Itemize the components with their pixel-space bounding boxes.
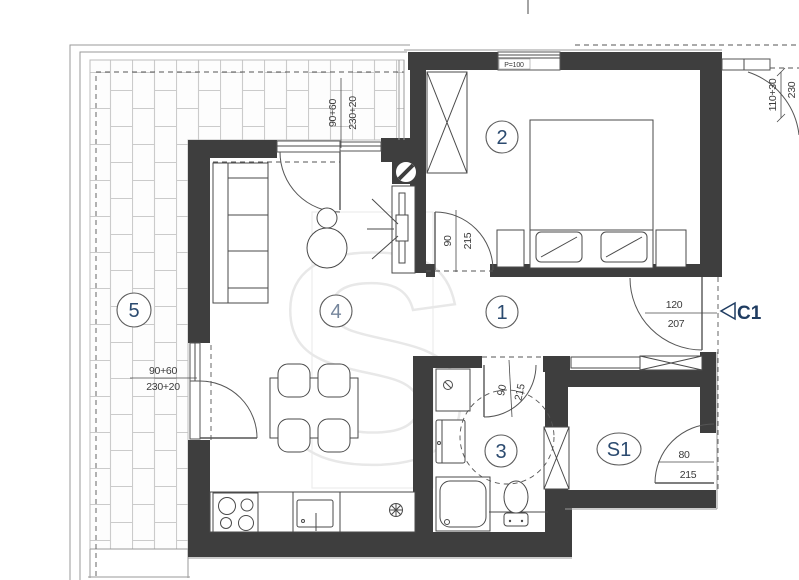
hall-closet	[571, 357, 640, 368]
kitchen-sink	[297, 500, 333, 531]
svg-text:1: 1	[496, 302, 507, 324]
kitchen-counter	[210, 492, 415, 532]
dim-entry-door: 120 207	[645, 299, 717, 330]
bath-sink	[436, 369, 470, 411]
bedroom-window: P=100	[498, 0, 560, 70]
svg-text:S1: S1	[607, 439, 631, 461]
terrace-door-left	[190, 343, 257, 440]
svg-text:90: 90	[495, 383, 509, 397]
svg-text:90+60: 90+60	[327, 99, 339, 127]
window-parapet-label: P=100	[504, 62, 524, 69]
entry-marker: C1	[721, 303, 762, 324]
room-label-hall: 1	[486, 296, 518, 328]
wardrobe	[427, 72, 467, 173]
dim-bathroom-door: 90 215	[495, 360, 528, 417]
svg-text:215: 215	[512, 383, 527, 402]
bathroom-door	[482, 357, 543, 417]
svg-text:4: 4	[330, 301, 341, 323]
entry-marker-triangle-icon	[721, 303, 735, 319]
hob-vent-icon	[390, 504, 403, 517]
svg-text:230+20: 230+20	[347, 96, 359, 130]
svg-text:5: 5	[128, 300, 139, 322]
svg-text:90+60: 90+60	[149, 365, 177, 377]
hall-wardrobe-crossed	[640, 356, 702, 370]
svg-text:215: 215	[462, 232, 474, 249]
plant-small	[317, 208, 337, 228]
entry-door	[630, 277, 702, 350]
room-label-bedroom: 2	[486, 121, 518, 153]
stove	[213, 493, 258, 532]
entry-marker-label: C1	[737, 303, 762, 324]
svg-text:230+20: 230+20	[146, 381, 180, 393]
toilet	[504, 481, 528, 526]
svg-text:230: 230	[786, 81, 798, 98]
svg-text:90: 90	[442, 235, 454, 247]
svg-text:2: 2	[496, 127, 507, 149]
svg-text:207: 207	[668, 318, 685, 330]
svg-text:215: 215	[680, 469, 697, 481]
svg-text:110+30: 110+30	[767, 78, 779, 111]
nightstand-left	[497, 230, 524, 267]
svg-text:80: 80	[678, 449, 690, 461]
svg-text:3: 3	[495, 441, 506, 463]
bed	[530, 120, 653, 268]
terrace-bottom-strip	[88, 549, 190, 578]
sofa	[213, 163, 268, 303]
column	[395, 161, 417, 183]
shaft	[544, 427, 569, 489]
floor-plan-page: S	[0, 0, 799, 580]
dim-storage-door: 80 215	[658, 449, 714, 481]
svg-text:120: 120	[666, 299, 683, 311]
shower	[436, 477, 490, 531]
nightstand-right	[656, 230, 686, 267]
room-label-storage: S1	[597, 433, 641, 465]
washing-machine	[436, 420, 465, 463]
room-label-bathroom: 3	[485, 435, 517, 467]
plant-large	[307, 228, 347, 268]
floor-plan-drawing: S	[0, 0, 799, 580]
room-label-terrace: 5	[117, 293, 151, 327]
room-label-living: 4	[320, 295, 352, 327]
